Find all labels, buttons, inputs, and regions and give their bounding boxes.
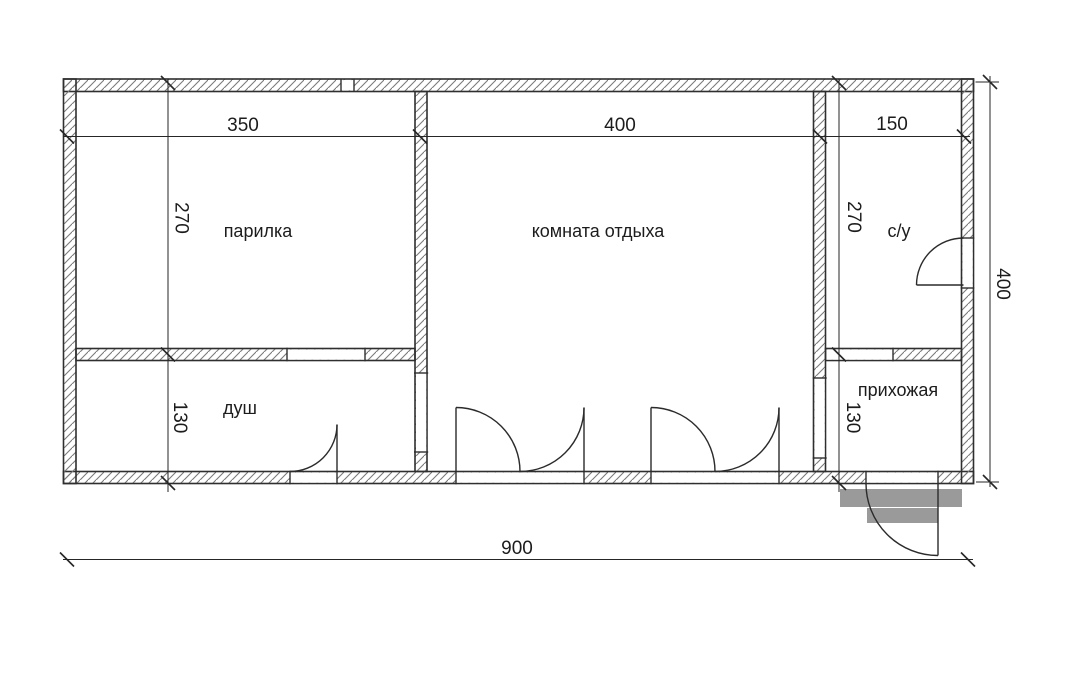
french-door-1-opening [456,473,584,483]
dim-label-130-left: 130 [169,402,190,434]
wall-openings [287,79,974,485]
entrance-steps [840,489,962,523]
dim-label-350: 350 [227,115,259,136]
bathroom-door-swing-arc [917,238,964,285]
shower-door-swing-arc [290,425,337,472]
french-door-2-left-arc [651,408,715,472]
dim-label-900-overall: 900 [501,538,533,559]
bathroom-door-opening [963,238,973,288]
dim-label-150: 150 [876,114,908,135]
walls [64,79,974,484]
step-upper [840,489,962,507]
entrance-door-opening [866,473,938,483]
french-door-1-left-arc [456,408,520,472]
room-label-rest-room: комната отдыха [532,221,666,241]
shower-restroom-doorway [416,373,426,452]
restroom-hallway-doorway [815,378,825,458]
steam-shower-doorway [287,350,365,360]
room-label-bathroom: с/у [887,221,910,241]
floor-plan-page: 350 400 150 270 130 270 130 400 900 пари… [0,0,1092,680]
step-lower [867,508,938,523]
french-door-2-opening [651,473,779,483]
room-label-hallway: прихожая [858,380,938,400]
room-labels: парилка комната отдыха с/у душ прихожая [223,221,938,418]
dim-label-130-right: 130 [842,402,863,434]
dim-label-400-top: 400 [604,115,636,136]
top-wall-vent-opening [341,80,354,90]
french-door-2-right-arc [715,408,779,472]
floor-plan-drawing: 350 400 150 270 130 270 130 400 900 пари… [0,0,1092,680]
dim-label-270-right: 270 [843,201,864,233]
dim-label-400-overall: 400 [992,268,1013,300]
room-label-shower: душ [223,398,257,418]
french-door-1-right-arc [520,408,584,472]
dim-label-270-left: 270 [171,202,192,234]
shower-door-opening [290,473,337,483]
room-label-steam-room: парилка [224,221,294,241]
